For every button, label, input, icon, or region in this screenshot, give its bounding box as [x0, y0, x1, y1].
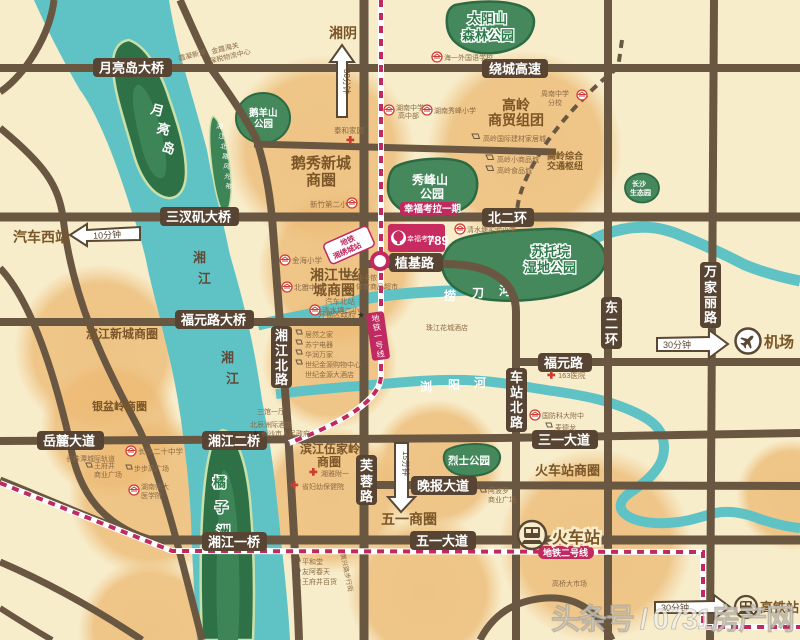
svg-text:交通枢纽: 交通枢纽: [547, 160, 583, 171]
svg-text:生态园: 生态园: [630, 188, 651, 197]
svg-text:丽: 丽: [704, 295, 717, 310]
svg-text:长沙市人民政府: 长沙市人民政府: [261, 429, 310, 438]
svg-text:★: ★: [252, 429, 259, 438]
svg-text:医学院: 医学院: [141, 491, 162, 500]
svg-text:环: 环: [605, 332, 618, 347]
svg-text:★: ★: [357, 310, 365, 320]
svg-text:国防科大附中: 国防科大附中: [542, 411, 584, 420]
svg-text:高岭小商品城: 高岭小商品城: [497, 155, 539, 164]
svg-text:家: 家: [704, 280, 718, 295]
svg-text:金海小学: 金海小学: [292, 255, 322, 265]
svg-text:体育商品超市: 体育商品超市: [356, 282, 398, 291]
svg-text:三汊矶大桥: 三汊矶大桥: [166, 210, 232, 225]
svg-text:湘江一桥: 湘江一桥: [208, 535, 261, 550]
svg-text:植基路: 植基路: [394, 256, 435, 271]
svg-text:北雅中学: 北雅中学: [294, 282, 324, 292]
svg-text:长沙: 长沙: [632, 179, 646, 188]
svg-text:10分钟: 10分钟: [93, 228, 122, 240]
svg-text:鹅羊山: 鹅羊山: [249, 107, 278, 119]
svg-text:麦德龙: 麦德龙: [555, 423, 576, 432]
svg-text:高岭食品城: 高岭食品城: [497, 166, 532, 175]
svg-text:五一商圈: 五一商圈: [381, 511, 437, 527]
svg-text:烈士公园: 烈士公园: [448, 454, 490, 467]
svg-text:森林公园: 森林公园: [462, 28, 514, 43]
svg-text:苏宁电器: 苏宁电器: [305, 340, 333, 349]
svg-text:阳: 阳: [448, 377, 460, 392]
svg-text:车: 车: [510, 370, 523, 385]
svg-text:步步高广场: 步步高广场: [134, 464, 169, 473]
svg-text:芙: 芙: [360, 458, 374, 473]
svg-text:高中部: 高中部: [398, 111, 419, 120]
svg-text:湿地公园: 湿地公园: [524, 260, 576, 275]
svg-text:火车站: 火车站: [552, 528, 600, 547]
svg-text:高桥大市场: 高桥大市场: [552, 579, 587, 588]
svg-text:15分钟: 15分钟: [401, 451, 411, 476]
svg-text:汽车北站: 汽车北站: [325, 296, 355, 306]
svg-text:福元路大桥: 福元路大桥: [180, 313, 247, 328]
svg-text:橘: 橘: [212, 475, 226, 490]
svg-text:华润万家: 华润万家: [305, 350, 333, 359]
svg-text:江: 江: [198, 271, 211, 286]
svg-text:分校: 分校: [548, 98, 562, 107]
svg-text:路: 路: [275, 372, 289, 387]
svg-text:长沙二十中学: 长沙二十中学: [138, 446, 183, 456]
svg-text:苏托垸: 苏托垸: [531, 244, 570, 259]
svg-text:湘: 湘: [193, 250, 206, 265]
svg-text:湖南秀峰小学: 湖南秀峰小学: [434, 106, 476, 115]
svg-text:路: 路: [704, 310, 718, 325]
svg-text:周南中学: 周南中学: [541, 89, 569, 98]
svg-text:三馆一厅: 三馆一厅: [257, 407, 285, 416]
svg-text:头条号 / 0731房产网: 头条号 / 0731房产网: [551, 603, 795, 636]
svg-text:子: 子: [215, 500, 228, 515]
svg-text:汽车西站: 汽车西站: [13, 229, 69, 245]
svg-text:高岭: 高岭: [502, 97, 530, 113]
svg-text:北: 北: [275, 358, 288, 373]
svg-text:江: 江: [226, 371, 239, 386]
svg-text:岳麓大道: 岳麓大道: [43, 434, 95, 449]
svg-text:清水塘实验小学: 清水塘实验小学: [467, 225, 516, 234]
svg-text:五一大道: 五一大道: [416, 534, 468, 549]
svg-text:三一大道: 三一大道: [538, 433, 590, 448]
svg-text:湖南师大: 湖南师大: [141, 482, 169, 491]
svg-text:万: 万: [703, 264, 717, 279]
svg-text:公园: 公园: [254, 119, 273, 130]
svg-text:开福区政府: 开福区政府: [318, 309, 356, 319]
svg-text:世纪金源购物中心: 世纪金源购物中心: [305, 360, 361, 369]
svg-text:王府井百货: 王府井百货: [302, 577, 337, 586]
svg-text:居然之家: 居然之家: [305, 330, 333, 339]
svg-text:高岭综合: 高岭综合: [547, 150, 584, 161]
svg-text:长株潭城际轨道: 长株潭城际轨道: [66, 454, 115, 463]
svg-text:秀峰山: 秀峰山: [411, 172, 448, 187]
svg-text:商圈: 商圈: [306, 171, 336, 189]
svg-text:北: 北: [510, 400, 523, 415]
svg-text:月亮岛大桥: 月亮岛大桥: [98, 61, 165, 76]
svg-text:163医院: 163医院: [558, 370, 586, 380]
svg-text:高岭国际建材家居城: 高岭国际建材家居城: [483, 134, 546, 143]
svg-text:友阿春天: 友阿春天: [302, 567, 330, 576]
svg-text:公园: 公园: [420, 187, 444, 201]
svg-text:湘: 湘: [275, 328, 288, 343]
svg-text:商业广场: 商业广场: [488, 495, 516, 504]
svg-text:湘阴: 湘阴: [329, 25, 357, 41]
svg-text:30分钟: 30分钟: [342, 69, 352, 94]
svg-text:福元路: 福元路: [543, 356, 584, 371]
svg-text:火车站商圈: 火车站商圈: [535, 463, 600, 478]
svg-text:鹅秀新城: 鹅秀新城: [291, 154, 351, 172]
svg-text:线: 线: [376, 348, 385, 359]
svg-text:王府井: 王府井: [94, 461, 115, 470]
svg-text:站: 站: [510, 385, 523, 400]
svg-text:二: 二: [605, 316, 618, 331]
svg-text:30分钟: 30分钟: [663, 339, 691, 350]
svg-text:湖南中学: 湖南中学: [396, 103, 424, 112]
svg-text:刀: 刀: [472, 286, 484, 300]
svg-text:路: 路: [510, 415, 524, 430]
svg-text:河: 河: [473, 375, 486, 390]
svg-text:海一外国语学校: 海一外国语学校: [444, 53, 493, 62]
svg-text:平和堂: 平和堂: [302, 557, 323, 566]
svg-text:太阳山: 太阳山: [467, 11, 507, 26]
svg-text:蓉: 蓉: [360, 474, 374, 489]
svg-text:银盆岭商圈: 银盆岭商圈: [92, 399, 147, 413]
svg-text:湘: 湘: [221, 350, 234, 365]
svg-text:商圈: 商圈: [317, 454, 341, 469]
svg-text:商贸组团: 商贸组团: [488, 112, 544, 128]
svg-text:湘雅附一: 湘雅附一: [321, 469, 349, 478]
svg-text:迪卡侬: 迪卡侬: [356, 273, 377, 282]
svg-text:北辰洲际酒店: 北辰洲际酒店: [250, 420, 292, 429]
svg-text:省妇幼保健院: 省妇幼保健院: [302, 482, 344, 491]
svg-text:珠江花城酒店: 珠江花城酒店: [426, 323, 468, 332]
svg-text:滨江伍家岭: 滨江伍家岭: [300, 441, 360, 456]
svg-text:幸福考拉一期: 幸福考拉一期: [404, 203, 461, 215]
svg-text:地铁二号线: 地铁二号线: [543, 547, 588, 558]
svg-text:晚报大道: 晚报大道: [417, 479, 469, 494]
svg-text:789: 789: [427, 233, 449, 248]
svg-text:商业广场: 商业广场: [94, 470, 122, 479]
svg-text:滨江新城商圈: 滨江新城商圈: [86, 326, 158, 341]
svg-text:泰和家园: 泰和家园: [334, 125, 364, 135]
svg-text:北二环: 北二环: [488, 211, 527, 226]
svg-text:世纪金源大酒店: 世纪金源大酒店: [305, 370, 354, 379]
svg-text:捞: 捞: [444, 288, 456, 303]
svg-text:绕城高速: 绕城高速: [489, 62, 541, 77]
svg-text:江: 江: [275, 343, 288, 358]
svg-text:东: 东: [605, 300, 618, 315]
svg-text:浏: 浏: [420, 379, 432, 394]
svg-text:机场: 机场: [764, 333, 794, 351]
svg-text:阿波罗: 阿波罗: [488, 486, 509, 495]
svg-text:路: 路: [360, 489, 374, 504]
